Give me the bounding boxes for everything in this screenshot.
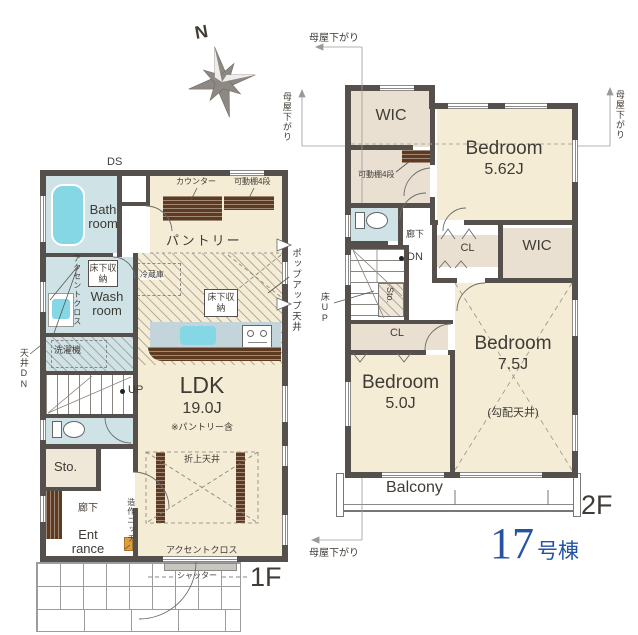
moya-top-label: 母屋下がり	[309, 29, 359, 44]
bedroom-c-size: 7.5J	[458, 356, 568, 374]
compass-star	[181, 40, 262, 125]
kitchen-sink	[180, 326, 216, 345]
popup-ceiling-label: ポップアップ天井	[288, 248, 302, 354]
ds-shaft	[122, 176, 146, 202]
door-opening	[438, 220, 464, 225]
window	[40, 420, 46, 440]
wash-sink	[52, 299, 70, 319]
window	[505, 103, 547, 109]
wall	[351, 145, 413, 150]
balcony-area	[338, 478, 579, 512]
coffered-beam	[156, 452, 165, 523]
window	[448, 103, 488, 109]
window	[380, 85, 414, 91]
wall	[40, 487, 101, 491]
moya-bottom-label: 母屋下がり	[309, 544, 359, 559]
wic-top-label: WIC	[358, 107, 424, 125]
movable-shelf-2f	[402, 150, 432, 163]
window	[282, 386, 288, 422]
closet-b-label: CL	[438, 242, 497, 254]
building-number-suffix: 号棟	[537, 535, 579, 565]
accent-cloth-wash-label: アクセントクロス	[72, 254, 81, 338]
ldk-label: LDK	[150, 372, 254, 399]
stove	[242, 325, 272, 349]
toilet-2f-bowl	[366, 212, 388, 229]
stove-line	[248, 342, 267, 343]
bedroom-c-note: (勾配天井)	[458, 404, 568, 420]
movable-shelf-2f-label: 可動棚4段	[358, 171, 394, 180]
wall	[345, 350, 426, 355]
porch-step-grid	[36, 610, 241, 632]
floor2-label: 2F	[581, 490, 613, 521]
window	[572, 300, 578, 336]
bathroom-label: Bath room	[80, 203, 126, 230]
dn-marker-dot	[399, 256, 404, 261]
window	[345, 215, 351, 237]
window	[282, 515, 288, 545]
bedroom-c-label: Bedroom	[458, 333, 568, 355]
window	[572, 140, 578, 182]
window	[40, 496, 46, 522]
storage-2f-label: Sto.	[384, 287, 394, 315]
wall	[40, 371, 135, 375]
window	[40, 196, 46, 242]
closet-a-label: CL	[351, 327, 443, 339]
door-opening	[457, 278, 485, 283]
up-marker-dot	[120, 389, 125, 394]
window-sliding-door	[163, 556, 237, 562]
kitchen-counter-edge	[148, 347, 281, 361]
hallway-1f-label: 廊下	[78, 499, 98, 514]
washroom-label: Wash room	[82, 290, 132, 317]
window	[345, 255, 351, 285]
hallway-2f-label: 廊下	[406, 230, 424, 240]
ceiling-down-label: 天井DN	[18, 348, 28, 402]
balcony-post	[336, 473, 344, 517]
window-sliding-door	[382, 472, 444, 478]
entrance-label: Ent rance	[62, 528, 114, 555]
bedroom-c-label-block: Bedroom 7.5J	[458, 333, 568, 374]
ldk-label-block: LDK 19.0J ※パントリー含	[150, 372, 254, 433]
building-number: 17	[490, 522, 534, 566]
bedroom-b-size: 5.0J	[351, 395, 450, 413]
shoe-cabinet	[46, 491, 62, 539]
movable-shelf-1f-label: 可動棚4段	[234, 178, 270, 187]
wall	[122, 202, 150, 206]
shutter-bar	[164, 563, 237, 571]
underfloor-storage-wash-label: 床下収納	[88, 260, 118, 287]
balcony-label: Balcony	[386, 479, 443, 497]
pantry-shelf	[224, 196, 274, 210]
dn-label: DN	[407, 251, 423, 263]
bedroom-a-label: Bedroom	[440, 138, 568, 160]
wall	[351, 203, 435, 208]
stove-burner	[247, 330, 254, 337]
wall	[96, 449, 101, 491]
storage-1f-label: Sto.	[54, 460, 77, 474]
toilet-2f-tank	[355, 212, 365, 229]
ldk-note-label: ※パントリー含	[150, 423, 254, 433]
pantry-label: パントリー	[166, 230, 242, 249]
wall	[282, 170, 288, 562]
moya-right-label: 母屋下がり	[614, 90, 624, 150]
stairs-1f	[46, 375, 133, 414]
floorplan-canvas: N DS カウンター 可動棚4段 パントリー Bath room 床下収納 アク…	[0, 0, 638, 635]
wall	[40, 414, 135, 418]
washing-machine-label: 洗濯機	[54, 346, 81, 356]
ldk-size-label: 19.0J	[150, 400, 254, 418]
bedroom-a-label-block: Bedroom 5.62J	[440, 138, 568, 179]
coffered-ceiling-label: 折上天井	[184, 455, 220, 465]
wall	[398, 204, 403, 245]
wall	[498, 225, 503, 282]
pantry-counter	[163, 196, 222, 221]
window	[40, 282, 46, 312]
wall	[450, 350, 455, 472]
floor1-label: 1F	[250, 562, 282, 593]
balcony-post	[573, 473, 581, 517]
accent-cloth-ldk-label: アクセントクロス	[166, 546, 238, 556]
coffered-beam	[236, 452, 245, 523]
window-sliding-door	[460, 472, 542, 478]
compass-north-label: N	[193, 21, 209, 44]
underfloor-storage-kitchen-label: 床下収納	[204, 289, 238, 317]
bedroom-a-size: 5.62J	[440, 161, 568, 179]
floor-up-label: 床UP	[319, 292, 329, 332]
balcony-inner-line	[341, 504, 577, 505]
bedroom-c-area	[455, 283, 572, 472]
wall	[432, 278, 578, 283]
wall	[133, 253, 138, 472]
building-number-block: 17 号棟	[490, 522, 579, 566]
bedroom-b-label: Bedroom	[351, 372, 450, 394]
window	[572, 415, 578, 451]
wall	[430, 91, 435, 165]
wic-side-label: WIC	[504, 237, 570, 254]
wall	[351, 245, 409, 249]
moya-left-label: 母屋下がり	[281, 92, 291, 152]
wall	[40, 444, 135, 449]
wall	[46, 333, 135, 337]
stove-burner	[260, 330, 267, 337]
toilet-1f-tank	[52, 421, 62, 438]
shutter-label: シャッター	[177, 572, 217, 581]
bedroom-b-label-block: Bedroom 5.0J	[351, 372, 450, 413]
up-label: UP	[128, 384, 143, 396]
fridge-label: 冷蔵庫	[140, 271, 164, 280]
ds-label: DS	[107, 156, 122, 168]
counter-label: カウンター	[176, 178, 216, 187]
window	[230, 170, 264, 176]
wall	[432, 225, 437, 282]
window	[282, 446, 288, 466]
toilet-1f-bowl	[63, 421, 85, 438]
built-in-niche-label: 造作ニッチ	[126, 498, 135, 544]
wall	[345, 320, 453, 324]
